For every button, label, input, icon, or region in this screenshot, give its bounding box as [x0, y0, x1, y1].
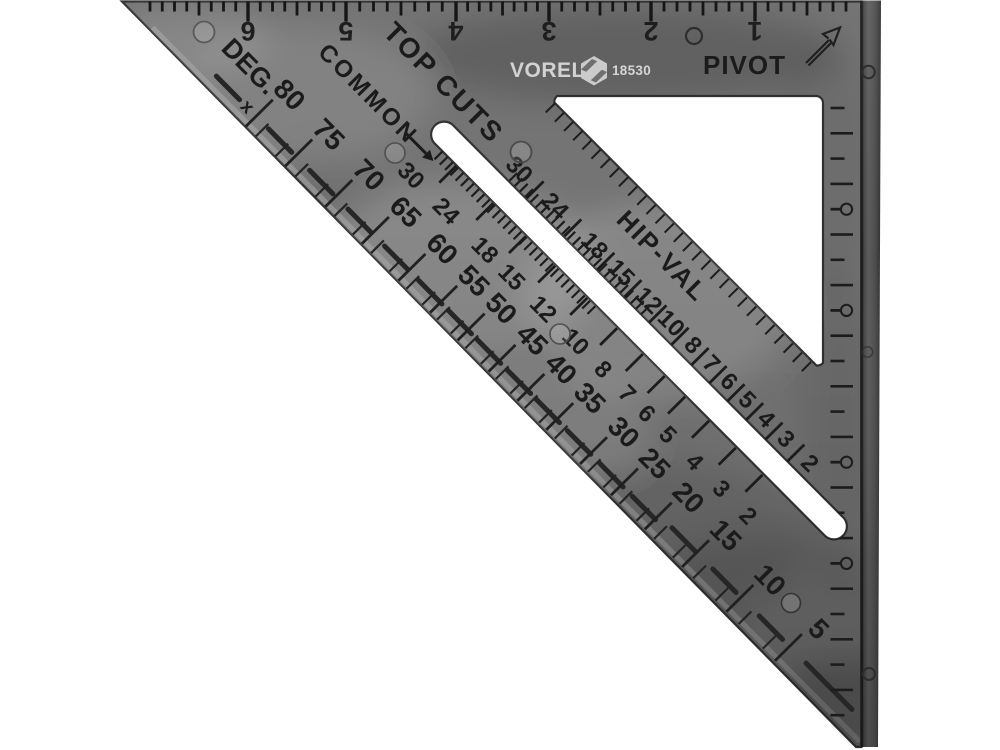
svg-text:VOREL: VOREL	[510, 59, 585, 82]
svg-text:6: 6	[240, 16, 255, 46]
svg-text:1: 1	[747, 16, 762, 46]
svg-text:2: 2	[643, 16, 658, 46]
svg-text:4: 4	[448, 16, 463, 46]
svg-text:18530: 18530	[612, 63, 651, 78]
svg-text:5: 5	[338, 16, 353, 46]
svg-text:PIVOT: PIVOT	[703, 50, 786, 80]
svg-text:3: 3	[541, 16, 556, 46]
